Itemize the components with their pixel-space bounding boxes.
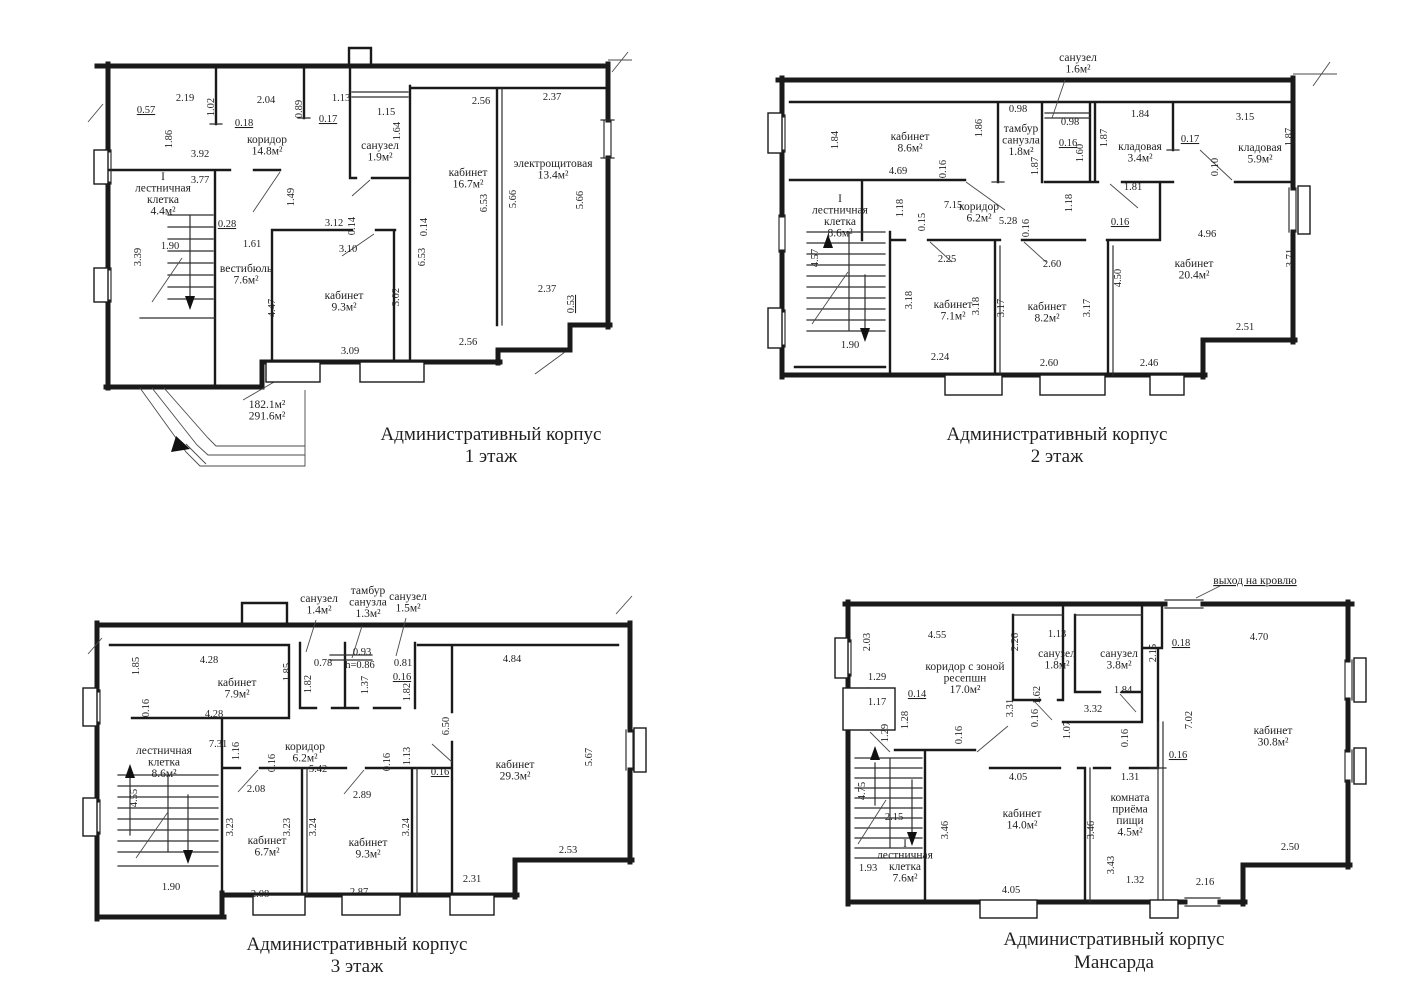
dimension-label: 0.93: [353, 647, 371, 658]
pilaster: [94, 268, 108, 302]
dimension-label: 1.29: [868, 672, 886, 683]
pilaster: [835, 638, 848, 678]
pilaster: [83, 688, 97, 726]
dimension-label: 0.16: [1021, 219, 1032, 237]
dimension-label: 4.28: [205, 709, 223, 720]
dimension-label: 3.15: [1236, 112, 1254, 123]
dimension-label: 0.18: [1172, 638, 1190, 649]
dimension-label: 3.12: [325, 218, 343, 229]
pilaster: [768, 308, 782, 348]
dimension-label: 1.81: [1124, 182, 1142, 193]
dimension-label: 4.69: [889, 166, 907, 177]
dimension-label: 3.31: [1005, 699, 1016, 717]
dimension-label: 2.37: [543, 92, 561, 103]
room-label: кладовая5.9м²: [1238, 142, 1282, 166]
dimension-label: 2.60: [1040, 358, 1058, 369]
dimension-label: 0.16: [393, 672, 411, 683]
dimension-label: 0.16: [1111, 217, 1129, 228]
dimension-label: 2.16: [1196, 877, 1214, 888]
room-label: электрощитовая13.4м²: [514, 158, 594, 182]
stairs-down-arrow: [907, 832, 917, 846]
dimension-label: 2.87: [350, 887, 368, 898]
floor-2-drawing: санузел1.6м²кабинет8.6м²тамбурсанузла1.8…: [768, 52, 1337, 467]
room-label: тамбурсанузла1.3м²: [349, 585, 387, 620]
dimension-label: 2.24: [931, 352, 950, 363]
dimension-label: 4.57: [810, 249, 821, 267]
dimension-label: 1.62: [1032, 686, 1043, 704]
floor-2-details: [779, 113, 1296, 375]
dimension-label: 2.26: [1010, 633, 1021, 651]
window-sill: [1150, 900, 1178, 918]
dimension-label: 4.47: [267, 299, 278, 317]
room-label: кабинет16.7м²: [449, 167, 488, 191]
dimension-label: 1.90: [161, 241, 179, 252]
dimension-label: 0.53: [566, 295, 577, 313]
dimension-label: 0.16: [141, 699, 152, 717]
stairs-down-arrow: [183, 850, 193, 864]
pilaster: [1354, 748, 1366, 784]
dimension-label: 1.87: [1284, 128, 1295, 146]
dimension-label: 6.53: [417, 248, 428, 266]
dimension-label: 3.71: [1285, 249, 1296, 267]
floor-3-title: Административный корпус: [247, 934, 468, 955]
dimension-label: 0.17: [1181, 134, 1199, 145]
pilaster: [94, 150, 108, 184]
floor-2-labels: санузел1.6м²кабинет8.6м²тамбурсанузла1.8…: [810, 52, 1296, 369]
room-label: кабинет14.0м²: [1003, 808, 1042, 832]
dimension-label: 2.04: [257, 95, 276, 106]
dimension-label: h=0.86: [345, 660, 375, 671]
room-label: Iлестничнаяклетка4.4м²: [135, 171, 192, 218]
room-label: коридор6.2м²: [285, 741, 325, 765]
dimension-label: 2.08: [251, 889, 269, 900]
dimension-label: 1.82: [303, 675, 314, 693]
dimension-label: 1.13: [402, 747, 413, 765]
dimension-label: 1.87: [1030, 157, 1041, 175]
dimension-label: 3.17: [996, 299, 1007, 317]
pilaster: [768, 113, 782, 153]
room-label: выход на кровлю: [1213, 575, 1297, 587]
dimension-label: 1.84: [830, 130, 841, 149]
dimension-label: 3.10: [339, 244, 357, 255]
room-label: санузел1.6м²: [1059, 52, 1097, 76]
room-label: санузел1.9м²: [361, 140, 399, 164]
pilaster: [1354, 658, 1366, 702]
blueprint-canvas: коридор14.8м²санузел1.9м²кабинет16.7м²эл…: [0, 0, 1403, 992]
room-label: кабинет9.3м²: [349, 837, 388, 861]
floor-mansard-title: Административный корпус: [1004, 929, 1225, 950]
dimension-label: 3.46: [940, 821, 951, 839]
dimension-label: 2.31: [463, 874, 481, 885]
floor-1-drawing: коридор14.8м²санузел1.9м²кабинет16.7м²эл…: [88, 48, 632, 467]
dimension-label: 2.50: [1281, 842, 1299, 853]
closet-box: [843, 688, 895, 730]
dimension-label: 7.15: [944, 200, 962, 211]
window-sill: [266, 362, 320, 382]
floor-mansard-labels: выход на кровлюкоридор с зонойресепшн17.…: [857, 575, 1299, 896]
dimension-label: 5.66: [508, 190, 519, 208]
dimension-label: 1.29: [880, 724, 891, 742]
dimension-label: 3.24: [401, 817, 412, 836]
dimension-label: 2.37: [538, 284, 556, 295]
floor-3-subtitle: 3 этаж: [331, 956, 384, 977]
room-label: коридор с зонойресепшн17.0м²: [925, 661, 1004, 696]
dimension-label: 0.78: [314, 658, 332, 669]
dimension-label: 0.14: [347, 216, 358, 235]
dimension-label: 1.02: [206, 98, 217, 116]
pilaster: [634, 728, 646, 772]
room-label: кабинет9.3м²: [325, 290, 364, 314]
room-label: кабинет30.8м²: [1254, 725, 1293, 749]
dimension-label: 7.02: [1184, 711, 1195, 729]
window-sill: [1150, 375, 1184, 395]
stairs-up-arrow: [870, 746, 880, 760]
dimension-label: 2.08: [247, 784, 265, 795]
dimension-label: 0.15: [917, 213, 928, 231]
dimension-label: 2.19: [176, 93, 194, 104]
dimension-label: 0.16: [1169, 750, 1187, 761]
room-label: тамбурсанузла1.8м²: [1002, 123, 1040, 158]
dimension-label: 1.15: [377, 107, 395, 118]
dimension-label: 0.16: [1030, 709, 1041, 727]
dimension-label: 2.15: [1148, 644, 1159, 662]
dimension-label: 3.46: [1086, 821, 1097, 839]
window-sill: [342, 895, 400, 915]
dimension-label: 1.31: [1121, 772, 1139, 783]
dimension-label: 1.60: [1075, 144, 1086, 162]
floor-mansard-drawing: выход на кровлюкоридор с зонойресепшн17.…: [835, 575, 1366, 973]
dimension-label: 1.07: [1062, 721, 1073, 739]
dimension-label: 7.31: [209, 739, 227, 750]
room-label: санузел1.4м²: [300, 593, 338, 617]
dimension-label: 0.16: [431, 767, 449, 778]
dimension-label: 0.14: [908, 689, 927, 700]
dimension-label: 2.89: [353, 790, 371, 801]
room-label: 182.1м²291.6м²: [249, 399, 286, 423]
dimension-label: 2.03: [862, 633, 873, 651]
dimension-label: 1.18: [895, 199, 906, 217]
dimension-label: 1.13: [332, 93, 350, 104]
floor-plans-sheet: коридор14.8м²санузел1.9м²кабинет16.7м²эл…: [0, 0, 1403, 992]
dimension-label: 3.09: [341, 346, 359, 357]
dimension-label: 3.92: [191, 149, 209, 160]
room-label: кладовая3.4м²: [1118, 141, 1162, 165]
dimension-label: 4.84: [503, 654, 522, 665]
dimension-label: 6.53: [479, 194, 490, 212]
dimension-label: 4.70: [1250, 632, 1268, 643]
dimension-label: 1.16: [231, 742, 242, 760]
window-sill: [1040, 375, 1105, 395]
dimension-label: 1.90: [162, 882, 180, 893]
window-sill: [980, 900, 1037, 918]
dimension-label: 1.64: [392, 121, 403, 140]
dimension-label: 3.24: [308, 817, 319, 836]
dimension-label: 3.23: [225, 818, 236, 836]
window-sill: [945, 375, 1002, 395]
dimension-label: 2.56: [472, 96, 490, 107]
pilaster: [1298, 186, 1310, 234]
dimension-label: 0.14: [419, 217, 430, 236]
dimension-label: 0.10: [1210, 158, 1221, 176]
dimension-label: 1.86: [164, 130, 175, 148]
dimension-label: 4.75: [857, 782, 868, 800]
floor-mansard-subtitle: Мансарда: [1074, 952, 1155, 973]
dimension-label: 1.32: [1126, 875, 1144, 886]
room-label: санузел3.8м²: [1100, 648, 1138, 672]
dimension-label: 1.49: [286, 188, 297, 206]
dimension-label: 0.57: [137, 105, 155, 116]
dimension-label: 1.86: [974, 119, 985, 137]
dimension-label: 1.84: [1131, 109, 1150, 120]
dimension-label: 1.85: [282, 663, 293, 681]
room-label: коридор14.8м²: [247, 134, 287, 158]
dimension-label: 2.56: [459, 337, 477, 348]
floor-2-title: Административный корпус: [947, 424, 1168, 445]
dimension-label: 1.93: [859, 863, 877, 874]
dimension-label: 1.82: [402, 683, 413, 701]
pilaster: [83, 798, 97, 836]
dimension-label: 1.85: [131, 657, 142, 675]
dimension-label: 1.37: [360, 676, 371, 694]
dimension-label: 1.28: [900, 711, 911, 729]
dimension-label: 3.02: [391, 288, 402, 306]
dimension-label: 0.18: [235, 118, 253, 129]
dimension-label: 3.18: [971, 297, 982, 315]
dimension-label: 2.15: [885, 812, 903, 823]
dimension-label: 4.50: [1113, 269, 1124, 287]
dimension-label: 1.61: [243, 239, 261, 250]
dimension-label: 2.53: [559, 845, 577, 856]
dimension-label: 3.18: [904, 291, 915, 309]
dimension-label: 4.28: [200, 655, 218, 666]
floor-2-subtitle: 2 этаж: [1031, 446, 1084, 467]
dimension-label: 0.98: [1061, 117, 1079, 128]
dimension-label: 4.96: [1198, 229, 1216, 240]
dimension-label: 4.55: [129, 789, 140, 807]
room-label: санузел1.5м²: [389, 591, 427, 615]
dimension-label: 1.84: [1114, 685, 1133, 696]
dimension-label: 0.28: [218, 219, 236, 230]
dimension-label: 0.81: [394, 658, 412, 669]
floor-1-leader-lines: [88, 52, 632, 466]
dimension-label: 5.42: [309, 764, 327, 775]
dimension-label: 0.16: [954, 726, 965, 744]
floor-3-labels: санузел1.4м²тамбурсанузла1.3м²санузел1.5…: [129, 585, 595, 900]
room-label: вестибюль7.6м²: [220, 263, 272, 287]
stairs-up-arrow: [125, 764, 135, 778]
window-sill: [360, 362, 424, 382]
window-sill: [450, 895, 494, 915]
floor-1-subtitle: 1 этаж: [465, 446, 518, 467]
dimension-label: 0.16: [938, 160, 949, 178]
dimension-label: 5.67: [584, 748, 595, 766]
dimension-label: 1.17: [868, 697, 886, 708]
floor-1-title: Административный корпус: [381, 424, 602, 445]
dimension-label: 1.87: [1099, 129, 1110, 147]
dimension-label: 0.98: [1009, 104, 1027, 115]
dimension-label: 5.66: [575, 191, 586, 209]
dimension-label: 1.90: [841, 340, 859, 351]
dimension-label: 2.60: [1043, 259, 1061, 270]
stairs-down-arrow: [185, 296, 195, 310]
dimension-label: 0.89: [294, 100, 305, 118]
room-label: кабинет6.7м²: [248, 835, 287, 859]
dimension-label: 1.13: [1048, 629, 1066, 640]
room-label: кабинет8.2м²: [1028, 301, 1067, 325]
dimension-label: 3.39: [133, 248, 144, 266]
dimension-label: 3.77: [191, 175, 209, 186]
dimension-label: 4.55: [928, 630, 946, 641]
room-label: кабинет7.9м²: [218, 677, 257, 701]
dimension-label: 4.05: [1002, 885, 1020, 896]
dimension-label: 3.17: [1082, 299, 1093, 317]
room-label: комнатаприёмапищи4.5м²: [1110, 792, 1149, 839]
dimension-label: 2.46: [1140, 358, 1158, 369]
room-label: коридор6.2м²: [959, 201, 999, 225]
dimension-label: 0.16: [382, 753, 393, 771]
dimension-label: 2.25: [938, 254, 956, 265]
room-label: кабинет20.4м²: [1175, 258, 1214, 282]
dimension-label: 3.43: [1106, 856, 1117, 874]
room-label: кабинет7.1м²: [934, 299, 973, 323]
dimension-label: 4.05: [1009, 772, 1027, 783]
dimension-label: 2.51: [1236, 322, 1254, 333]
dimension-label: 5.28: [999, 216, 1017, 227]
room-label: кабинет29.3м²: [496, 759, 535, 783]
dimension-label: 6.50: [441, 717, 452, 735]
room-label: кабинет8.6м²: [891, 131, 930, 155]
dimension-label: 0.16: [267, 754, 278, 772]
dimension-label: 3.32: [1084, 704, 1102, 715]
dimension-label: 3.23: [282, 818, 293, 836]
dimension-label: 0.17: [319, 114, 337, 125]
dimension-label: 0.16: [1120, 729, 1131, 747]
ramp-arrow: [171, 436, 190, 452]
dimension-label: 1.18: [1064, 194, 1075, 212]
stairs-down-arrow: [860, 328, 870, 342]
floor-3-drawing: санузел1.4м²тамбурсанузла1.3м²санузел1.5…: [83, 585, 646, 977]
room-label: санузел1.8м²: [1038, 648, 1076, 672]
